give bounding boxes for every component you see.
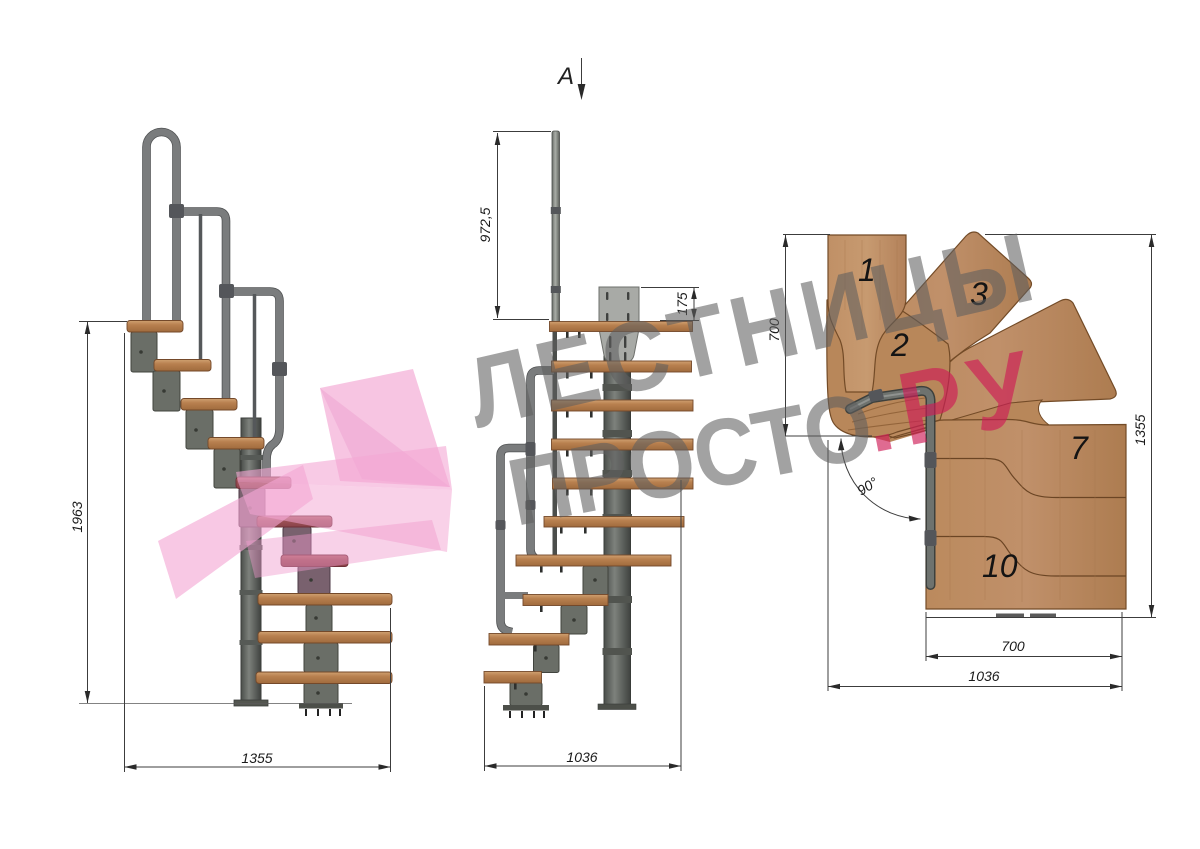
svg-text:1355: 1355: [241, 750, 272, 766]
svg-text:7: 7: [1070, 430, 1089, 466]
svg-text:700: 700: [1001, 638, 1025, 654]
svg-text:1355: 1355: [1132, 414, 1148, 445]
svg-text:1036: 1036: [968, 668, 999, 684]
svg-text:A: A: [556, 63, 574, 90]
svg-text:972,5: 972,5: [477, 207, 493, 242]
svg-text:10: 10: [982, 548, 1018, 584]
svg-text:1036: 1036: [566, 749, 597, 765]
svg-text:1963: 1963: [69, 501, 85, 532]
